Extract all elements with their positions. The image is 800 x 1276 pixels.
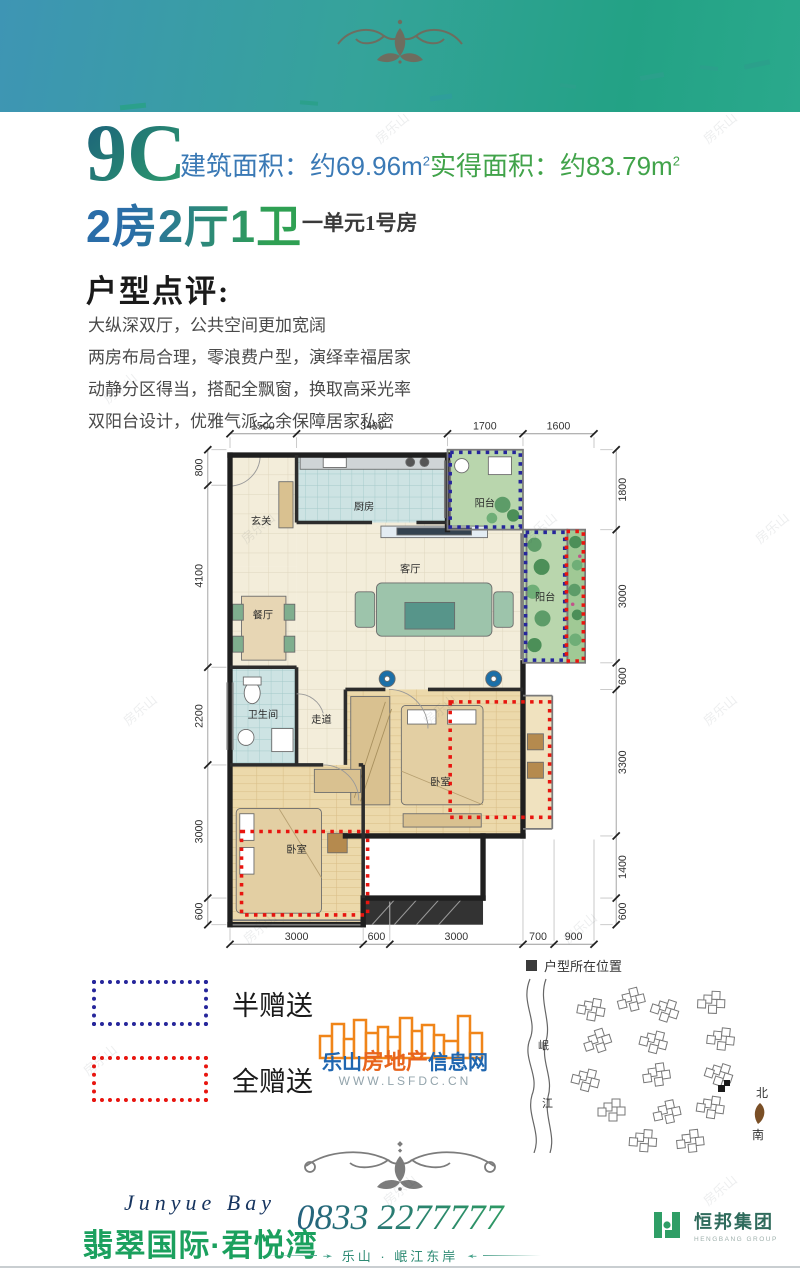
siteplan-title: 户型所在位置 bbox=[544, 956, 622, 975]
lsfdc-url: WWW.LSFDC.CN bbox=[339, 1074, 472, 1088]
siteplan-header: 户型所在位置 bbox=[526, 956, 792, 975]
dim-right: 1800 bbox=[617, 478, 629, 502]
half-gift-label: 半赠送 bbox=[232, 984, 313, 1023]
dim-right: 3300 bbox=[617, 750, 629, 774]
compass: 北 南 bbox=[752, 1086, 768, 1142]
unit-location: 一单元1号房 bbox=[302, 207, 418, 237]
dim-right: 1400 bbox=[617, 855, 629, 879]
dim-right: 600 bbox=[617, 902, 629, 920]
dim-bottom: 900 bbox=[565, 931, 583, 943]
room-label-balcony-top: 阳台 bbox=[475, 497, 495, 510]
room-label-living: 客厅 bbox=[400, 562, 420, 575]
river-char-jiang: 江 bbox=[542, 1097, 553, 1110]
flyer-page: 9C 建筑面积：约69.96m2实得面积：约83.79m2 2房2厅1卫 一单元… bbox=[0, 0, 800, 1276]
review-title: 户型点评: bbox=[86, 266, 230, 311]
room-label-bedroom-second: 卧室 bbox=[286, 843, 306, 856]
room-label-corridor: 走道 bbox=[311, 713, 331, 726]
legend-row-half: 半赠送 bbox=[92, 980, 313, 1026]
stair-shaft bbox=[363, 898, 483, 925]
dim-left: 3000 bbox=[193, 820, 205, 844]
dim-left: 800 bbox=[193, 459, 205, 477]
dim-left: 4100 bbox=[193, 564, 205, 588]
built-area-text: 建筑面积：约69.96m2 bbox=[180, 151, 430, 181]
developer-name: 恒邦集团 HENGBANG GROUP bbox=[694, 1208, 778, 1243]
room-label-bedroom-master: 卧室 bbox=[430, 775, 450, 788]
slogan-row: ➛ 乐山 · 岷江东岸 ➛ bbox=[248, 1246, 552, 1265]
location-square-icon bbox=[526, 960, 537, 971]
room-label-bath: 卫生间 bbox=[248, 708, 279, 721]
dim-left: 2200 bbox=[193, 704, 205, 728]
river: 岷 江 bbox=[527, 979, 553, 1153]
arrow-right-icon: ➛ bbox=[323, 1249, 336, 1263]
compass-needle-icon bbox=[755, 1103, 765, 1124]
dim-bottom: 700 bbox=[529, 931, 547, 943]
watermark-text: 房乐山 bbox=[698, 1170, 740, 1210]
watermark-text: 房乐山 bbox=[370, 108, 412, 148]
dim-top: 3400 bbox=[360, 420, 384, 432]
lsfdc-logo: 乐山房地产信息网 WWW.LSFDC.CN bbox=[312, 1006, 498, 1092]
compass-south-label: 南 bbox=[752, 1127, 764, 1142]
flourish-ornament-top bbox=[330, 14, 470, 72]
dim-top: 1600 bbox=[547, 420, 571, 432]
rooms-spec: 2房2厅1卫 bbox=[86, 190, 302, 255]
arrow-left-icon: ➛ bbox=[464, 1249, 477, 1263]
review-line: 大纵深双厅，公共空间更加宽阔 bbox=[88, 310, 411, 342]
full-gift-swatch bbox=[92, 1056, 208, 1102]
floorplan-drawing: 玄关 厨房 阳台 客厅 阳台 餐厅 卫生间 走道 卧室 卧室 1500 bbox=[190, 416, 634, 962]
slogan-text: 乐山 · 岷江东岸 bbox=[342, 1246, 459, 1265]
full-gift-label: 全赠送 bbox=[232, 1060, 313, 1099]
area-line: 建筑面积：约69.96m2实得面积：约83.79m2 bbox=[180, 146, 680, 183]
building-clusters bbox=[570, 986, 735, 1153]
siteplan: 户型所在位置 岷 江 bbox=[500, 956, 792, 1158]
hengbang-mark-icon bbox=[648, 1206, 686, 1244]
watermark-text: 房乐山 bbox=[750, 508, 792, 548]
dim-left: 600 bbox=[193, 902, 205, 920]
phone-number: 0833 2277777 bbox=[280, 1196, 520, 1238]
bottom-rule bbox=[0, 1266, 800, 1268]
compass-north-label: 北 bbox=[756, 1086, 768, 1100]
dim-right: 600 bbox=[617, 667, 629, 685]
legend-row-full: 全赠送 bbox=[92, 1056, 313, 1102]
slogan-line-left bbox=[259, 1255, 317, 1256]
room-label-dining: 餐厅 bbox=[253, 608, 273, 621]
developer-name-cn: 恒邦集团 bbox=[694, 1208, 778, 1234]
review-line: 动静分区得当，搭配全飘窗，换取高采光率 bbox=[88, 374, 411, 406]
actual-area-text: 实得面积：约83.79m2 bbox=[430, 151, 680, 181]
siteplan-map: 岷 江 bbox=[500, 975, 792, 1153]
gift-legend: 半赠送 全赠送 bbox=[92, 980, 313, 1132]
watermark-text: 房乐山 bbox=[698, 690, 740, 730]
dim-right: 3000 bbox=[617, 584, 629, 608]
dim-top: 1700 bbox=[473, 420, 497, 432]
floor-corridor bbox=[297, 689, 346, 764]
watermark-text: 房乐山 bbox=[118, 690, 160, 730]
dim-bottom: 600 bbox=[368, 931, 386, 943]
river-char-min: 岷 bbox=[538, 1039, 549, 1052]
unit-code: 9C bbox=[86, 112, 186, 194]
lsfdc-name: 乐山房地产信息网 bbox=[322, 1049, 488, 1074]
room-label-kitchen: 厨房 bbox=[354, 500, 374, 513]
slogan-line-right bbox=[483, 1255, 541, 1256]
watermark-text: 房乐山 bbox=[698, 108, 740, 148]
review-line: 两房布局合理，零浪费户型，演绎幸福居家 bbox=[88, 342, 411, 374]
dim-bottom: 3000 bbox=[445, 931, 469, 943]
developer-name-en: HENGBANG GROUP bbox=[694, 1236, 778, 1243]
room-label-entry: 玄关 bbox=[251, 514, 271, 527]
developer-logo: 恒邦集团 HENGBANG GROUP bbox=[648, 1206, 778, 1244]
half-gift-swatch bbox=[92, 980, 208, 1026]
dim-bottom: 3000 bbox=[285, 931, 309, 943]
dim-top: 1500 bbox=[251, 420, 275, 432]
room-label-balcony-right: 阳台 bbox=[535, 591, 555, 604]
flourish-ornament-bottom bbox=[298, 1140, 502, 1198]
